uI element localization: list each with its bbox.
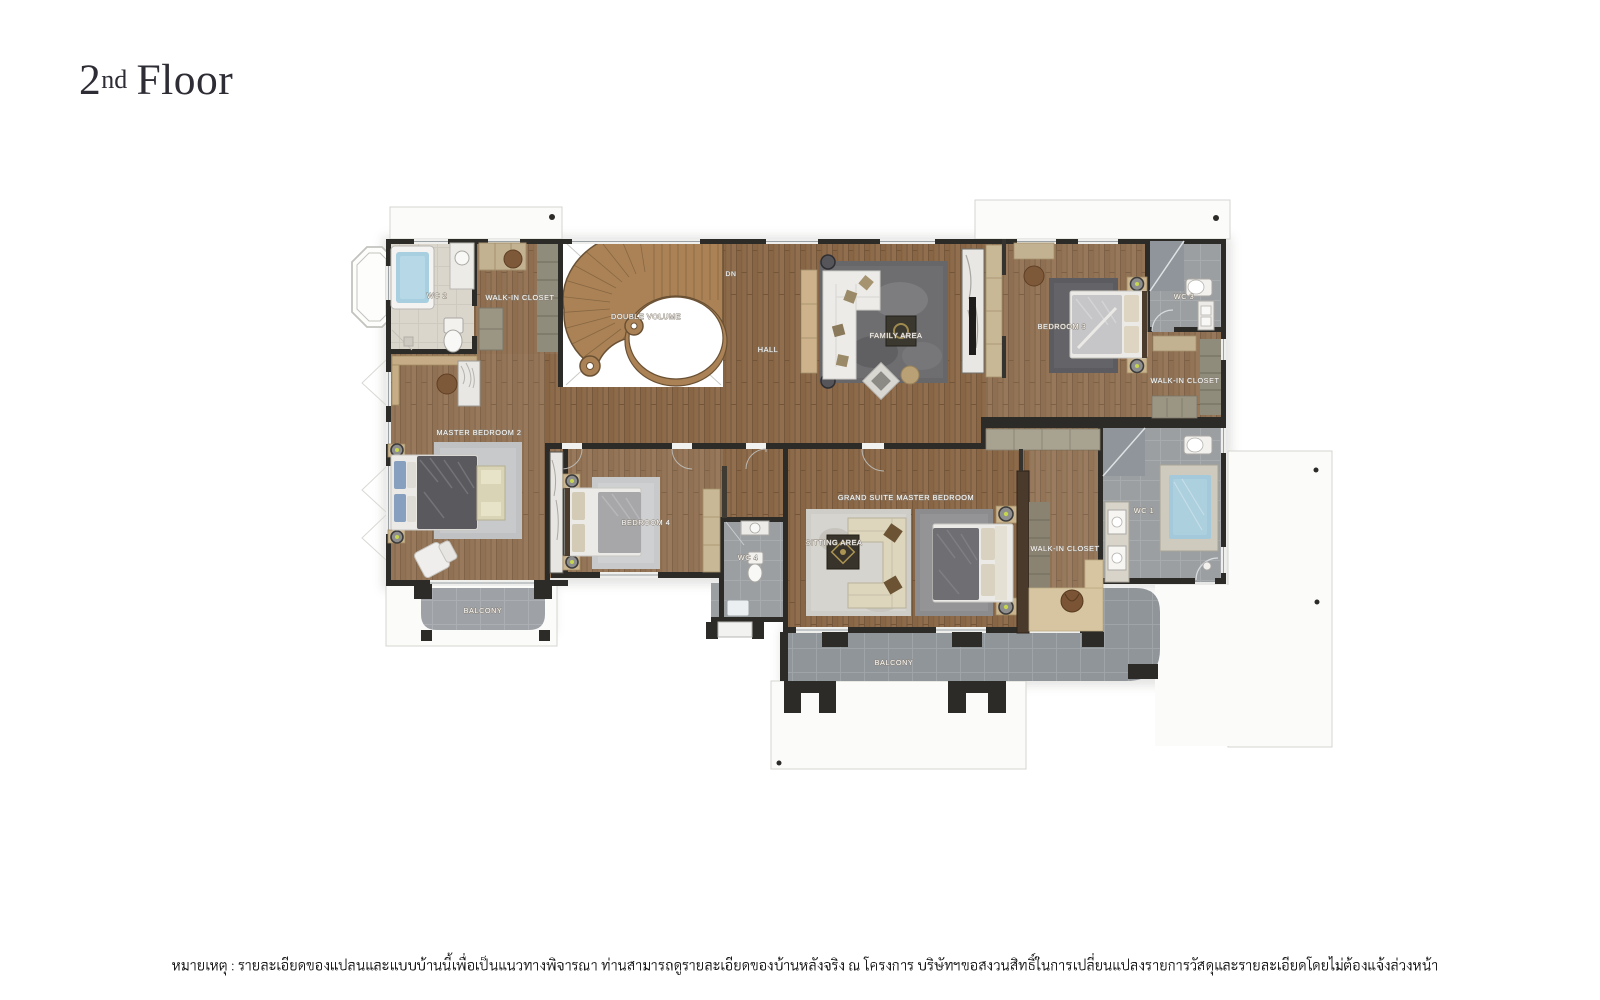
svg-text:WC 1: WC 1 xyxy=(1134,506,1154,515)
svg-text:WC 2: WC 2 xyxy=(427,291,447,300)
svg-text:DOUBLE VOLUME: DOUBLE VOLUME xyxy=(611,312,681,321)
svg-text:DN: DN xyxy=(726,271,737,278)
svg-text:BALCONY: BALCONY xyxy=(464,606,503,615)
svg-text:BEDROOM 3: BEDROOM 3 xyxy=(1038,322,1087,331)
svg-text:GRAND SUITE MASTER BEDROOM: GRAND SUITE MASTER BEDROOM xyxy=(838,493,974,502)
svg-text:BEDROOM 4: BEDROOM 4 xyxy=(622,518,671,527)
svg-text:FAMILY AREA: FAMILY AREA xyxy=(870,331,923,340)
svg-text:BALCONY: BALCONY xyxy=(875,658,914,667)
svg-text:WALK-IN CLOSET: WALK-IN CLOSET xyxy=(485,293,554,302)
svg-text:MASTER BEDROOM 2: MASTER BEDROOM 2 xyxy=(436,428,521,437)
svg-text:HALL: HALL xyxy=(758,345,778,354)
svg-text:WC 3: WC 3 xyxy=(1174,292,1194,301)
svg-text:WC 4: WC 4 xyxy=(738,553,758,562)
svg-text:WALK-IN CLOSET: WALK-IN CLOSET xyxy=(1030,544,1099,553)
svg-text:SITTING AREA: SITTING AREA xyxy=(806,538,863,547)
svg-text:WALK-IN CLOSET: WALK-IN CLOSET xyxy=(1150,376,1219,385)
